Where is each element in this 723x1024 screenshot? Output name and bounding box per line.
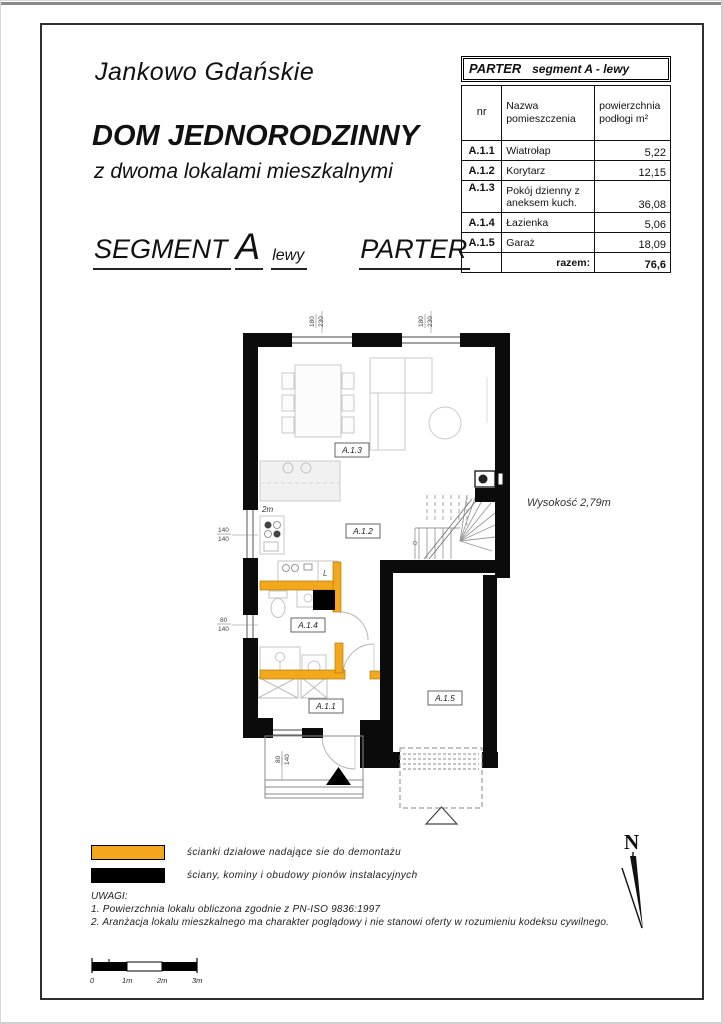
wardrobe-hatch — [258, 677, 327, 698]
legend-item-structural: ściany, kominy i obudowy pionów instalac… — [91, 868, 418, 883]
garage-door — [400, 748, 482, 808]
room-label-a11: A.1.1 — [309, 699, 343, 713]
svg-text:80: 80 — [220, 617, 228, 624]
floor-plan: 2m L — [212, 303, 512, 828]
segment-line: SEGMENT A lewy PARTER — [93, 228, 470, 270]
room-label-a15: A.1.5 — [428, 691, 462, 705]
segment-letter: A — [235, 228, 264, 270]
row-area: 18,09 — [595, 233, 671, 253]
north-label: N — [624, 830, 639, 855]
svg-text:A.1.4: A.1.4 — [297, 620, 318, 630]
note-line: 1. Powierzchnia lokalu obliczona zgodnie… — [91, 904, 691, 915]
entry-porch — [265, 736, 363, 798]
dim-top-window-1: 180 230 — [309, 314, 325, 328]
floor-word: PARTER — [359, 234, 470, 270]
scale-label-2m: 2m — [156, 976, 167, 985]
row-name: Łazienka — [502, 213, 595, 233]
row-nr: A.1.5 — [462, 233, 502, 253]
svg-text:180: 180 — [418, 316, 425, 327]
staircase — [413, 495, 495, 559]
chimney-block — [313, 590, 335, 610]
total-label: razem: — [502, 253, 595, 273]
col-header-area: powierzchnia podłogi m² — [595, 86, 671, 141]
table-row: A.1.1 Wiatrołap 5,22 — [462, 141, 671, 161]
structural-wall-swatch — [91, 868, 165, 883]
dining-table-furniture — [282, 365, 354, 437]
svg-text:230: 230 — [318, 316, 325, 327]
svg-text:A.1.1: A.1.1 — [315, 701, 336, 711]
garage-entrance-arrow — [426, 807, 457, 824]
area-table: PARTER segment A - lewy nr Nazwa pomiesz… — [461, 56, 671, 273]
notes-block: UWAGI: 1. Powierzchnia lokalu obliczona … — [91, 891, 691, 928]
scale-bar-drawing: 0 1m 2m 3m — [88, 956, 228, 988]
subtitle: z dwoma lokalami mieszkalnymi — [94, 160, 393, 184]
row-area: 12,15 — [595, 161, 671, 181]
scale-label-0: 0 — [90, 976, 95, 985]
scale-bar: 0 1m 2m 3m — [88, 956, 228, 988]
row-nr: A.1.2 — [462, 161, 502, 181]
kitchen-depth-label: 2m — [261, 505, 273, 514]
row-nr: A.1.3 — [462, 181, 502, 213]
table-title-segment: segment A - lewy — [532, 62, 629, 76]
dim-bottom-window: 80 140 — [275, 751, 291, 779]
row-nr: A.1.1 — [462, 141, 502, 161]
svg-text:80: 80 — [275, 755, 282, 763]
room-area-table: nr Nazwa pomieszczenia powierzchnia podł… — [461, 85, 671, 273]
table-row: A.1.2 Korytarz 12,15 — [462, 161, 671, 181]
row-name: Wiatrołap — [502, 141, 595, 161]
table-total-row: razem: 76,6 — [462, 253, 671, 273]
scale-label-1m: 1m — [122, 976, 132, 985]
legend-label: ściany, kominy i obudowy pionów instalac… — [187, 870, 418, 881]
total-empty-cell — [462, 253, 502, 273]
page: { "header": { "location": "Jankowo Gdańs… — [0, 0, 723, 1024]
room-label-a12: A.1.2 — [346, 524, 380, 538]
col-header-nr: nr — [462, 86, 502, 141]
row-name: Garaż — [502, 233, 595, 253]
notes-title: UWAGI: — [91, 891, 691, 902]
svg-text:A.1.3: A.1.3 — [341, 445, 362, 455]
room-label-a13: A.1.3 — [335, 443, 369, 457]
col-header-name: Nazwa pomieszczenia — [502, 86, 595, 141]
table-row: A.1.5 Garaż 18,09 — [462, 233, 671, 253]
ceiling-height-note: Wysokość 2,79m — [527, 497, 611, 509]
legend-label: ścianki działowe nadające sie do demonta… — [187, 847, 401, 858]
area-table-title: PARTER segment A - lewy — [463, 58, 669, 80]
scale-label-3m: 3m — [192, 976, 202, 985]
svg-text:A.1.2: A.1.2 — [352, 526, 373, 536]
sofa-furniture — [370, 358, 432, 450]
note-line: 2. Aranżacja lokalu mieszkalnego ma char… — [91, 917, 691, 928]
svg-text:230: 230 — [427, 316, 434, 327]
table-title-floor: PARTER — [469, 61, 521, 76]
floor-plan-drawing: 2m L — [212, 303, 512, 828]
table-row: A.1.3 Pokój dzienny z aneksem kuch. 36,0… — [462, 181, 671, 213]
row-area: 5,22 — [595, 141, 671, 161]
room-label-a14: A.1.4 — [291, 618, 325, 632]
svg-text:180: 180 — [309, 316, 316, 327]
svg-text:140: 140 — [218, 536, 229, 543]
total-value: 76,6 — [595, 253, 671, 273]
round-rug — [429, 407, 461, 439]
fridge-label: L — [323, 569, 327, 578]
entrance-arrow — [326, 767, 351, 785]
legend: ścianki działowe nadające sie do demonta… — [91, 845, 418, 891]
segment-word: SEGMENT — [93, 234, 231, 270]
kitchen-counter — [260, 461, 340, 582]
table-row: A.1.4 Łazienka 5,06 — [462, 213, 671, 233]
row-name: Pokój dzienny z aneksem kuch. — [502, 181, 595, 213]
svg-text:140: 140 — [284, 754, 291, 765]
segment-variant: lewy — [271, 247, 307, 270]
partition-wall-swatch — [91, 845, 165, 860]
main-title: DOM JEDNORODZINNY — [92, 120, 419, 153]
boiler-icon — [475, 471, 503, 487]
table-header-row: nr Nazwa pomieszczenia powierzchnia podł… — [462, 86, 671, 141]
legend-item-partition: ścianki działowe nadające sie do demonta… — [91, 845, 418, 860]
dim-top-window-2: 180 230 — [418, 314, 434, 328]
row-area: 36,08 — [595, 181, 671, 213]
svg-text:140: 140 — [218, 626, 229, 633]
row-nr: A.1.4 — [462, 213, 502, 233]
row-name: Korytarz — [502, 161, 595, 181]
svg-text:A.1.5: A.1.5 — [434, 693, 455, 703]
compass: N — [612, 830, 656, 938]
area-table-title-box: PARTER segment A - lewy — [461, 56, 671, 82]
row-area: 5,06 — [595, 213, 671, 233]
svg-text:140: 140 — [218, 527, 229, 534]
location-title: Jankowo Gdańskie — [95, 58, 314, 87]
